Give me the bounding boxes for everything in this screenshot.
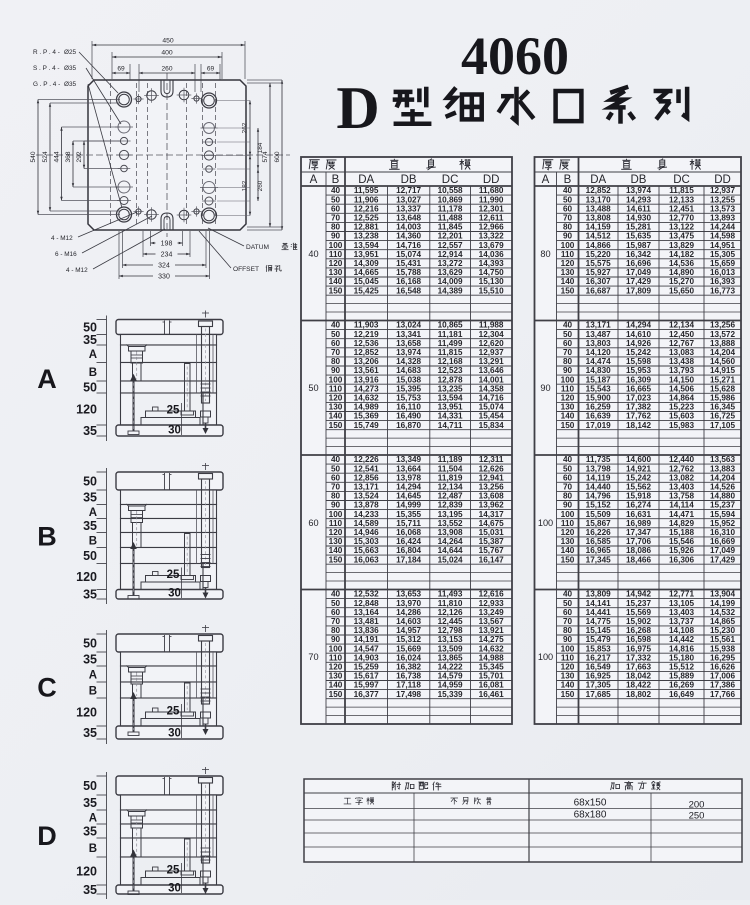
svg-text:16,626: 16,626	[710, 663, 735, 672]
svg-text:14,632: 14,632	[354, 394, 379, 403]
svg-text:15,659: 15,659	[710, 259, 735, 268]
svg-text:12,451: 12,451	[669, 204, 694, 213]
svg-text:15,753: 15,753	[396, 394, 421, 403]
svg-text:14,999: 14,999	[396, 501, 421, 510]
svg-text:16,382: 16,382	[396, 663, 421, 672]
svg-text:120: 120	[329, 528, 343, 537]
svg-text:80: 80	[563, 626, 573, 635]
svg-text:18,802: 18,802	[626, 690, 651, 699]
svg-text:15,045: 15,045	[354, 277, 379, 286]
svg-text:16,063: 16,063	[354, 555, 379, 564]
svg-text:15,339: 15,339	[438, 690, 463, 699]
svg-text:16,649: 16,649	[669, 690, 694, 699]
svg-text:DD: DD	[714, 174, 731, 186]
svg-text:12,487: 12,487	[438, 492, 463, 501]
svg-text:250: 250	[689, 811, 705, 822]
svg-text:70: 70	[563, 617, 573, 626]
svg-text:13,893: 13,893	[710, 214, 735, 223]
svg-text:13,341: 13,341	[396, 330, 421, 339]
svg-text:14,796: 14,796	[586, 492, 611, 501]
svg-text:14,275: 14,275	[479, 635, 504, 644]
svg-text:35: 35	[83, 588, 97, 602]
svg-text:13,883: 13,883	[710, 464, 735, 473]
svg-text:14,600: 14,600	[626, 455, 651, 464]
svg-text:35: 35	[83, 726, 97, 740]
svg-text:17,429: 17,429	[710, 555, 735, 564]
svg-text:13,153: 13,153	[438, 635, 463, 644]
svg-text:35: 35	[83, 796, 97, 810]
svg-text:90: 90	[563, 635, 573, 644]
svg-text:15,562: 15,562	[626, 483, 651, 492]
svg-text:14,951: 14,951	[710, 241, 735, 250]
svg-text:15,237: 15,237	[710, 501, 735, 510]
svg-text:A: A	[542, 174, 550, 186]
svg-text:15,387: 15,387	[479, 537, 504, 546]
svg-text:17,049: 17,049	[710, 546, 735, 555]
svg-text:16,268: 16,268	[626, 626, 651, 635]
svg-text:400: 400	[161, 50, 173, 57]
svg-text:13,664: 13,664	[396, 464, 421, 473]
svg-text:17,118: 17,118	[396, 681, 421, 690]
svg-text:260: 260	[257, 180, 264, 191]
svg-text:14,665: 14,665	[354, 268, 379, 277]
svg-text:70: 70	[331, 483, 341, 492]
svg-text:90: 90	[331, 501, 341, 510]
svg-text:60: 60	[331, 608, 341, 617]
svg-text:100: 100	[538, 652, 553, 662]
svg-text:R . P . 4 -: R . P . 4 -	[33, 49, 60, 56]
svg-text:13,679: 13,679	[479, 241, 504, 250]
svg-text:14,921: 14,921	[626, 464, 651, 473]
svg-text:90: 90	[331, 635, 341, 644]
svg-text:80: 80	[331, 626, 341, 635]
svg-text:12,134: 12,134	[438, 483, 463, 492]
svg-text:12,771: 12,771	[669, 590, 694, 599]
svg-text:16,687: 16,687	[586, 286, 611, 295]
svg-text:11,815: 11,815	[438, 348, 463, 357]
svg-text:14,988: 14,988	[479, 653, 504, 662]
svg-text:14,114: 14,114	[669, 501, 694, 510]
svg-text:DB: DB	[631, 174, 647, 186]
svg-text:15,305: 15,305	[710, 250, 735, 259]
svg-text:40: 40	[563, 590, 573, 599]
svg-text:16,168: 16,168	[396, 277, 421, 286]
svg-text:16,804: 16,804	[396, 546, 421, 555]
svg-text:444: 444	[53, 151, 60, 162]
svg-text:14,119: 14,119	[586, 473, 611, 482]
svg-text:100: 100	[561, 644, 575, 653]
svg-text:13,904: 13,904	[710, 590, 735, 599]
svg-text:11,819: 11,819	[438, 473, 463, 482]
svg-text:50: 50	[308, 383, 318, 393]
svg-text:150: 150	[561, 421, 575, 430]
svg-text:B: B	[89, 685, 97, 697]
svg-text:16,147: 16,147	[479, 555, 504, 564]
svg-text:15,425: 15,425	[354, 286, 379, 295]
svg-text:OFFSET: OFFSET	[233, 266, 259, 273]
svg-text:524: 524	[42, 151, 49, 162]
svg-text:16,226: 16,226	[586, 528, 611, 537]
svg-text:130: 130	[561, 537, 575, 546]
svg-text:150: 150	[561, 555, 575, 564]
svg-text:110: 110	[329, 519, 343, 528]
svg-text:130: 130	[561, 268, 575, 277]
svg-text:14,829: 14,829	[669, 519, 694, 528]
svg-text:14,675: 14,675	[479, 519, 504, 528]
svg-text:4060: 4060	[461, 26, 569, 86]
svg-text:16,307: 16,307	[586, 277, 611, 286]
svg-text:80: 80	[563, 357, 573, 366]
svg-text:13,235: 13,235	[438, 384, 463, 393]
svg-text:40: 40	[331, 321, 341, 330]
svg-text:12,536: 12,536	[354, 339, 379, 348]
svg-text:11,488: 11,488	[438, 214, 463, 223]
svg-text:14,903: 14,903	[354, 653, 379, 662]
svg-text:17,049: 17,049	[626, 268, 651, 277]
svg-text:13,798: 13,798	[586, 464, 611, 473]
svg-text:14,880: 14,880	[710, 492, 735, 501]
svg-text:140: 140	[329, 412, 343, 421]
svg-text:14,474: 14,474	[586, 357, 611, 366]
svg-text:12,856: 12,856	[354, 473, 379, 482]
svg-text:17,663: 17,663	[626, 663, 651, 672]
svg-text:13,195: 13,195	[438, 510, 463, 519]
svg-text:14,204: 14,204	[710, 348, 735, 357]
svg-text:50: 50	[83, 549, 97, 563]
svg-text:11,504: 11,504	[438, 464, 463, 473]
svg-text:15,509: 15,509	[586, 510, 611, 519]
svg-text:17,006: 17,006	[710, 672, 735, 681]
svg-text:13,552: 13,552	[438, 519, 463, 528]
svg-text:16,393: 16,393	[710, 277, 735, 286]
svg-text:12,966: 12,966	[479, 223, 504, 232]
svg-text:DD: DD	[483, 174, 500, 186]
svg-text:70: 70	[563, 214, 573, 223]
svg-text:17,809: 17,809	[626, 286, 651, 295]
svg-text:25: 25	[167, 405, 180, 417]
svg-text:B: B	[89, 843, 97, 855]
svg-text:600: 600	[274, 151, 281, 162]
svg-text:35: 35	[83, 824, 97, 838]
svg-text:15,270: 15,270	[669, 277, 694, 286]
svg-text:12,557: 12,557	[438, 241, 463, 250]
svg-text:11,990: 11,990	[479, 195, 504, 204]
svg-text:60: 60	[331, 339, 341, 348]
svg-text:130: 130	[561, 672, 575, 681]
svg-text:14,191: 14,191	[354, 635, 379, 644]
svg-text:13,803: 13,803	[586, 339, 611, 348]
svg-text:30: 30	[168, 425, 181, 437]
svg-text:15,242: 15,242	[626, 473, 651, 482]
svg-text:14,506: 14,506	[669, 384, 694, 393]
svg-text:12,304: 12,304	[479, 330, 504, 339]
svg-text:17,429: 17,429	[626, 277, 651, 286]
svg-text:16,068: 16,068	[396, 528, 421, 537]
svg-text:13,758: 13,758	[669, 492, 694, 501]
svg-text:14,526: 14,526	[710, 483, 735, 492]
svg-text:13,509: 13,509	[438, 644, 463, 653]
svg-text:13,594: 13,594	[438, 394, 463, 403]
svg-text:60: 60	[331, 473, 341, 482]
svg-text:70: 70	[563, 483, 573, 492]
svg-text:B: B	[564, 174, 572, 186]
svg-text:13,888: 13,888	[710, 339, 735, 348]
svg-text:13,962: 13,962	[479, 501, 504, 510]
svg-text:13,488: 13,488	[586, 204, 611, 213]
svg-text:DC: DC	[442, 174, 459, 186]
svg-text:15,635: 15,635	[626, 232, 651, 241]
svg-text:15,130: 15,130	[479, 277, 504, 286]
svg-text:13,658: 13,658	[396, 339, 421, 348]
svg-text:15,024: 15,024	[438, 555, 463, 564]
svg-text:15,952: 15,952	[710, 519, 735, 528]
svg-text:17,332: 17,332	[626, 653, 651, 662]
svg-text:12,541: 12,541	[354, 464, 379, 473]
svg-text:40: 40	[563, 321, 573, 330]
svg-text:12,852: 12,852	[354, 348, 379, 357]
svg-text:68x150: 68x150	[574, 798, 607, 809]
svg-text:17,305: 17,305	[586, 681, 611, 690]
svg-text:12,611: 12,611	[479, 214, 504, 223]
svg-text:14,926: 14,926	[626, 339, 651, 348]
svg-text:35: 35	[83, 424, 97, 438]
svg-text:11,178: 11,178	[438, 204, 463, 213]
svg-text:DA: DA	[590, 174, 606, 186]
svg-text:140: 140	[329, 277, 343, 286]
svg-text:292: 292	[76, 151, 83, 162]
svg-text:13,256: 13,256	[710, 321, 735, 330]
svg-text:A: A	[89, 507, 97, 519]
svg-text:35: 35	[83, 491, 97, 505]
svg-text:13,475: 13,475	[669, 232, 694, 241]
svg-text:A: A	[310, 174, 318, 186]
svg-text:330: 330	[158, 273, 170, 280]
svg-text:17,685: 17,685	[586, 690, 611, 699]
svg-text:110: 110	[561, 519, 575, 528]
svg-text:50: 50	[83, 380, 97, 394]
svg-text:15,669: 15,669	[396, 644, 421, 653]
svg-text:13,122: 13,122	[669, 223, 694, 232]
svg-text:35: 35	[83, 519, 97, 533]
svg-text:13,337: 13,337	[396, 204, 421, 213]
svg-text:14,866: 14,866	[586, 241, 611, 250]
svg-text:17,766: 17,766	[710, 690, 735, 699]
svg-text:16,110: 16,110	[396, 403, 421, 412]
svg-text:30: 30	[168, 883, 181, 895]
svg-text:450: 450	[162, 38, 174, 45]
svg-text:13,594: 13,594	[354, 241, 379, 250]
svg-text:18,086: 18,086	[626, 546, 651, 555]
svg-text:Ø35: Ø35	[64, 65, 77, 72]
svg-text:C: C	[37, 673, 57, 703]
svg-text:13,563: 13,563	[710, 455, 735, 464]
svg-text:14,440: 14,440	[586, 483, 611, 492]
svg-text:17,023: 17,023	[626, 394, 651, 403]
svg-text:80: 80	[540, 249, 550, 259]
svg-text:35: 35	[83, 333, 97, 347]
svg-text:Ø25: Ø25	[64, 49, 77, 56]
svg-text:30: 30	[168, 728, 181, 740]
svg-text:15,395: 15,395	[396, 384, 421, 393]
svg-text:12,168: 12,168	[438, 357, 463, 366]
svg-text:17,706: 17,706	[626, 537, 651, 546]
svg-text:B: B	[89, 367, 97, 379]
svg-text:15,788: 15,788	[396, 268, 421, 277]
svg-text:15,546: 15,546	[669, 537, 694, 546]
svg-text:14,393: 14,393	[479, 259, 504, 268]
svg-text:324: 324	[158, 262, 170, 269]
svg-text:140: 140	[329, 546, 343, 555]
svg-text:70: 70	[563, 348, 573, 357]
svg-text:12,933: 12,933	[479, 599, 504, 608]
svg-text:13,272: 13,272	[438, 259, 463, 268]
svg-text:13,487: 13,487	[586, 330, 611, 339]
svg-text:13,646: 13,646	[479, 366, 504, 375]
svg-text:14,890: 14,890	[669, 268, 694, 277]
svg-text:150: 150	[561, 690, 575, 699]
svg-text:14,711: 14,711	[438, 421, 463, 430]
svg-text:16,989: 16,989	[626, 519, 651, 528]
svg-text:15,074: 15,074	[396, 250, 421, 259]
svg-text:16,870: 16,870	[396, 421, 421, 430]
svg-text:16,377: 16,377	[354, 690, 379, 699]
svg-text:6 - M16: 6 - M16	[55, 251, 77, 258]
svg-text:16,081: 16,081	[479, 681, 504, 690]
svg-text:A: A	[89, 812, 97, 824]
svg-text:14,360: 14,360	[396, 232, 421, 241]
svg-text:14,830: 14,830	[586, 366, 611, 375]
svg-text:110: 110	[329, 384, 343, 393]
svg-text:14,294: 14,294	[396, 483, 421, 492]
svg-text:15,312: 15,312	[396, 635, 421, 644]
svg-text:140: 140	[329, 681, 343, 690]
svg-text:14,441: 14,441	[586, 608, 611, 617]
svg-text:13,027: 13,027	[396, 195, 421, 204]
svg-text:17,019: 17,019	[586, 421, 611, 430]
svg-text:15,997: 15,997	[354, 681, 379, 690]
svg-text:14,959: 14,959	[438, 681, 463, 690]
svg-text:13,438: 13,438	[669, 357, 694, 366]
svg-text:DB: DB	[401, 174, 417, 186]
svg-text:B: B	[37, 522, 57, 552]
svg-text:14,716: 14,716	[396, 241, 421, 250]
svg-text:15,281: 15,281	[626, 223, 651, 232]
svg-text:16,309: 16,309	[626, 375, 651, 384]
svg-text:12,914: 12,914	[438, 250, 463, 259]
svg-text:12,762: 12,762	[669, 464, 694, 473]
svg-text:574: 574	[262, 151, 269, 162]
svg-text:A: A	[89, 349, 97, 361]
svg-text:68x180: 68x180	[574, 810, 607, 821]
svg-text:13,256: 13,256	[479, 483, 504, 492]
svg-text:15,986: 15,986	[710, 394, 735, 403]
svg-text:DC: DC	[673, 174, 690, 186]
svg-text:D: D	[336, 75, 379, 141]
svg-text:14,644: 14,644	[438, 546, 463, 555]
svg-text:12,770: 12,770	[669, 214, 694, 223]
svg-text:110: 110	[329, 653, 343, 662]
svg-text:15,454: 15,454	[479, 412, 504, 421]
svg-text:80: 80	[331, 223, 341, 232]
svg-text:80: 80	[331, 492, 341, 501]
svg-text:4 - M12: 4 - M12	[51, 235, 73, 242]
svg-text:13,921: 13,921	[479, 626, 504, 635]
svg-text:15,938: 15,938	[710, 644, 735, 653]
svg-text:12,717: 12,717	[396, 186, 421, 195]
svg-text:13,206: 13,206	[354, 357, 379, 366]
svg-text:13,291: 13,291	[479, 357, 504, 366]
svg-text:13,171: 13,171	[586, 321, 611, 330]
svg-text:90: 90	[563, 366, 573, 375]
svg-text:182: 182	[242, 180, 249, 191]
svg-text:16,598: 16,598	[626, 635, 651, 644]
svg-text:14,358: 14,358	[479, 384, 504, 393]
svg-text:13,916: 13,916	[354, 375, 379, 384]
svg-text:13,171: 13,171	[354, 483, 379, 492]
svg-text:15,628: 15,628	[710, 384, 735, 393]
svg-text:12,881: 12,881	[354, 223, 379, 232]
svg-text:80: 80	[563, 223, 573, 232]
svg-text:13,249: 13,249	[479, 608, 504, 617]
svg-text:14,632: 14,632	[479, 644, 504, 653]
svg-text:16,549: 16,549	[586, 663, 611, 672]
svg-text:15,569: 15,569	[626, 608, 651, 617]
svg-text:14,547: 14,547	[354, 644, 379, 653]
svg-text:14,204: 14,204	[710, 473, 735, 482]
svg-text:120: 120	[76, 705, 97, 719]
svg-text:16,217: 16,217	[586, 653, 611, 662]
svg-text:13,865: 13,865	[438, 653, 463, 662]
svg-text:16,424: 16,424	[396, 537, 421, 546]
svg-text:12,937: 12,937	[479, 348, 504, 357]
svg-text:40: 40	[331, 590, 341, 599]
svg-text:13,082: 13,082	[669, 473, 694, 482]
svg-text:150: 150	[561, 286, 575, 295]
svg-text:12,219: 12,219	[354, 330, 379, 339]
svg-text:60: 60	[563, 339, 573, 348]
svg-text:15,031: 15,031	[479, 528, 504, 537]
svg-text:120: 120	[329, 394, 343, 403]
svg-text:18,042: 18,042	[626, 672, 651, 681]
svg-text:35: 35	[83, 652, 97, 666]
svg-text:30: 30	[168, 588, 181, 600]
svg-text:17,347: 17,347	[626, 528, 651, 537]
svg-text:15,242: 15,242	[626, 348, 651, 357]
svg-text:A: A	[37, 364, 57, 394]
svg-text:25: 25	[167, 569, 180, 581]
svg-text:13,164: 13,164	[354, 608, 379, 617]
svg-text:120: 120	[561, 663, 575, 672]
svg-text:13,836: 13,836	[354, 626, 379, 635]
svg-text:13,648: 13,648	[396, 214, 421, 223]
svg-text:15,431: 15,431	[396, 259, 421, 268]
svg-text:150: 150	[329, 421, 343, 430]
svg-text:14,716: 14,716	[479, 394, 504, 403]
svg-text:12,878: 12,878	[438, 375, 463, 384]
svg-text:50: 50	[331, 330, 341, 339]
svg-text:14,864: 14,864	[669, 394, 694, 403]
svg-text:14,199: 14,199	[710, 599, 735, 608]
svg-text:50: 50	[563, 464, 573, 473]
svg-text:100: 100	[329, 644, 343, 653]
svg-text:12,626: 12,626	[479, 464, 504, 473]
svg-text:15,834: 15,834	[479, 421, 504, 430]
svg-text:12,937: 12,937	[710, 186, 735, 195]
svg-text:13,238: 13,238	[354, 232, 379, 241]
svg-text:14,598: 14,598	[710, 232, 735, 241]
svg-text:16,013: 16,013	[710, 268, 735, 277]
svg-text:13,970: 13,970	[396, 599, 421, 608]
